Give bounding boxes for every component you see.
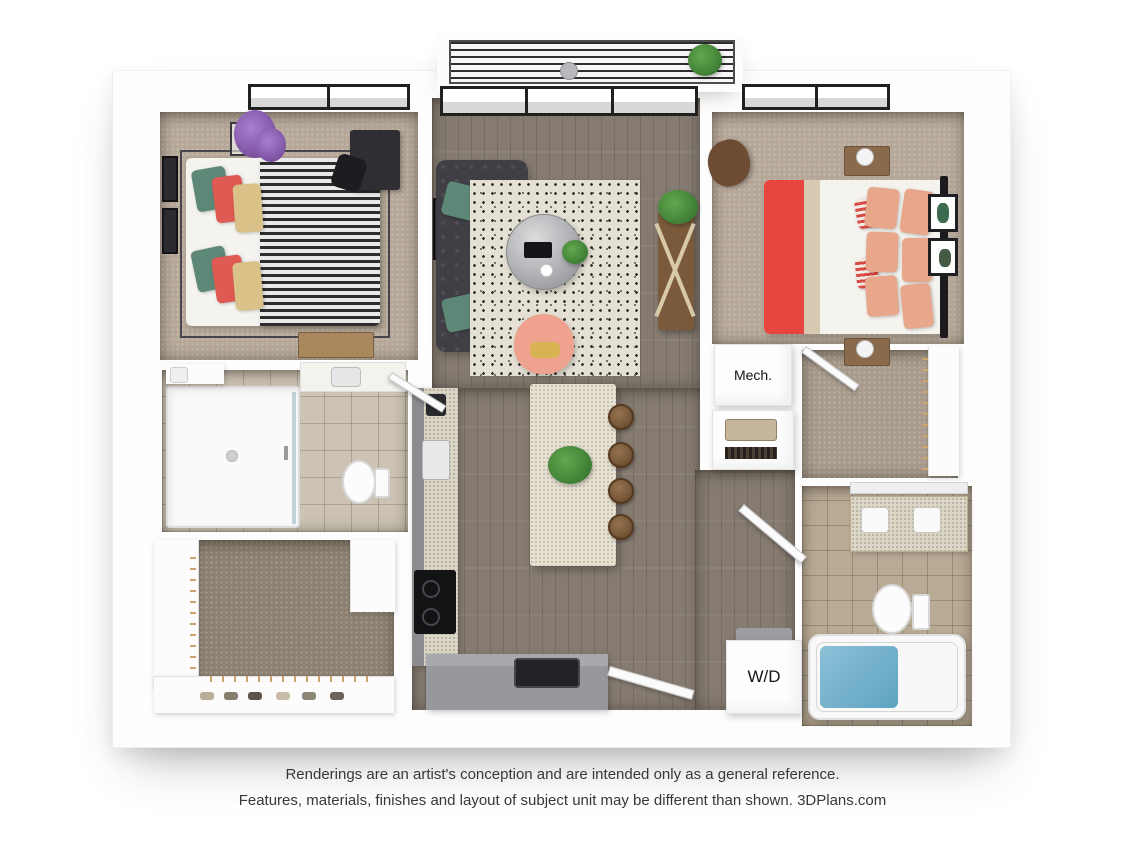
bathtub xyxy=(808,634,966,720)
bathtub-water xyxy=(820,646,898,708)
towel-shelf xyxy=(166,364,224,384)
shower-drain xyxy=(226,450,238,462)
bedroom-1-artwork xyxy=(162,208,178,254)
balcony-table xyxy=(560,62,578,80)
towel-roll xyxy=(170,367,188,383)
shower-glass xyxy=(292,392,296,524)
bar-stool xyxy=(608,442,634,468)
nightstand-lamp xyxy=(856,340,874,358)
bar-stool xyxy=(608,478,634,504)
coat-closet xyxy=(712,410,794,470)
bedroom-1-window xyxy=(248,84,410,110)
closet-hangers xyxy=(190,548,196,680)
hanging-clothes xyxy=(725,447,777,459)
bar-stool xyxy=(608,404,634,430)
shower-handle xyxy=(284,446,288,460)
disclaimer-line-2: Features, materials, finishes and layout… xyxy=(0,788,1125,814)
shoes xyxy=(248,692,262,700)
nightstand-lamp xyxy=(856,148,874,166)
bedroom-1-dresser xyxy=(298,332,374,358)
shoes xyxy=(224,692,238,700)
bathroom-2-sink xyxy=(861,507,889,533)
toilet xyxy=(342,460,376,504)
pillow xyxy=(900,283,934,330)
artwork-botanical xyxy=(937,203,949,223)
disclaimer-text: Renderings are an artist's conception an… xyxy=(0,762,1125,814)
pillow xyxy=(865,275,900,317)
washer-dryer-box: W/D xyxy=(726,640,802,714)
mech-closet-box: Mech. xyxy=(714,344,792,406)
closet-hangers xyxy=(210,676,370,682)
shoes xyxy=(302,692,316,700)
burner xyxy=(422,608,440,626)
closet-hangers xyxy=(922,352,928,470)
balcony-plant xyxy=(688,44,722,76)
shoes xyxy=(330,692,344,700)
burner xyxy=(422,580,440,598)
washer-dryer-label: W/D xyxy=(747,667,780,687)
shower xyxy=(166,386,300,528)
island-plant xyxy=(548,446,592,484)
window-mullion xyxy=(611,89,614,113)
disclaimer-line-1: Renderings are an artist's conception an… xyxy=(0,762,1125,788)
mech-label: Mech. xyxy=(734,367,772,383)
pillow xyxy=(864,186,900,229)
closet-shelving xyxy=(350,540,395,612)
console-table xyxy=(658,212,694,330)
cooktop xyxy=(414,570,456,634)
bathroom-1-sink xyxy=(331,367,361,387)
bedroom-2-window xyxy=(742,84,890,110)
kitchen-sink xyxy=(422,440,450,480)
storage-tray xyxy=(725,419,777,441)
bedroom-2-red-blanket xyxy=(764,180,804,334)
bedroom-1-artwork xyxy=(162,156,178,202)
window-mullion xyxy=(815,87,818,107)
bedroom-2-artwork xyxy=(928,238,958,276)
closet-shelving xyxy=(928,346,959,476)
bedroom-2-blanket-fold xyxy=(804,180,820,334)
bathroom-2-sink xyxy=(913,507,941,533)
bathroom-2-vanity xyxy=(850,496,968,552)
artwork-botanical xyxy=(939,249,951,267)
shoes xyxy=(276,692,290,700)
living-room-window-wall xyxy=(440,86,698,116)
tablet-on-table xyxy=(524,242,552,258)
bedroom-2-artwork xyxy=(928,194,958,232)
pillow xyxy=(865,231,898,272)
prep-sink xyxy=(514,658,580,688)
table-plant xyxy=(562,240,588,264)
toilet-tank xyxy=(374,468,390,498)
window-mullion xyxy=(327,87,330,107)
shoes xyxy=(200,692,214,700)
bedroom-1-purple-plant xyxy=(256,128,286,162)
cup-on-table xyxy=(540,264,553,277)
window-mullion xyxy=(525,89,528,113)
toilet-tank xyxy=(912,594,930,630)
floorplan-render: Mech. xyxy=(0,0,1125,844)
console-plant xyxy=(658,190,698,224)
armchair-cushion xyxy=(530,342,560,358)
bathroom-2-mirror xyxy=(850,482,968,494)
toilet xyxy=(872,584,912,634)
bar-stool xyxy=(608,514,634,540)
